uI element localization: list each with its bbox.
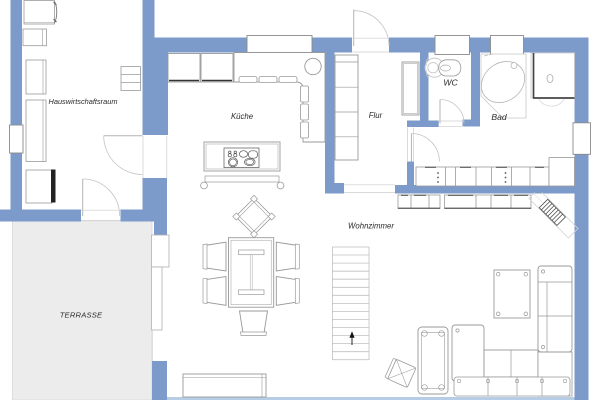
svg-text:Hauswirtschaftsraum: Hauswirtschaftsraum — [49, 97, 118, 106]
svg-text:Flur: Flur — [369, 111, 383, 120]
svg-text:WC: WC — [443, 78, 458, 88]
svg-text:Bad: Bad — [491, 112, 507, 122]
svg-text:Wohnzimmer: Wohnzimmer — [348, 222, 394, 231]
svg-text:TERRASSE: TERRASSE — [60, 311, 103, 320]
svg-text:Küche: Küche — [231, 112, 254, 121]
